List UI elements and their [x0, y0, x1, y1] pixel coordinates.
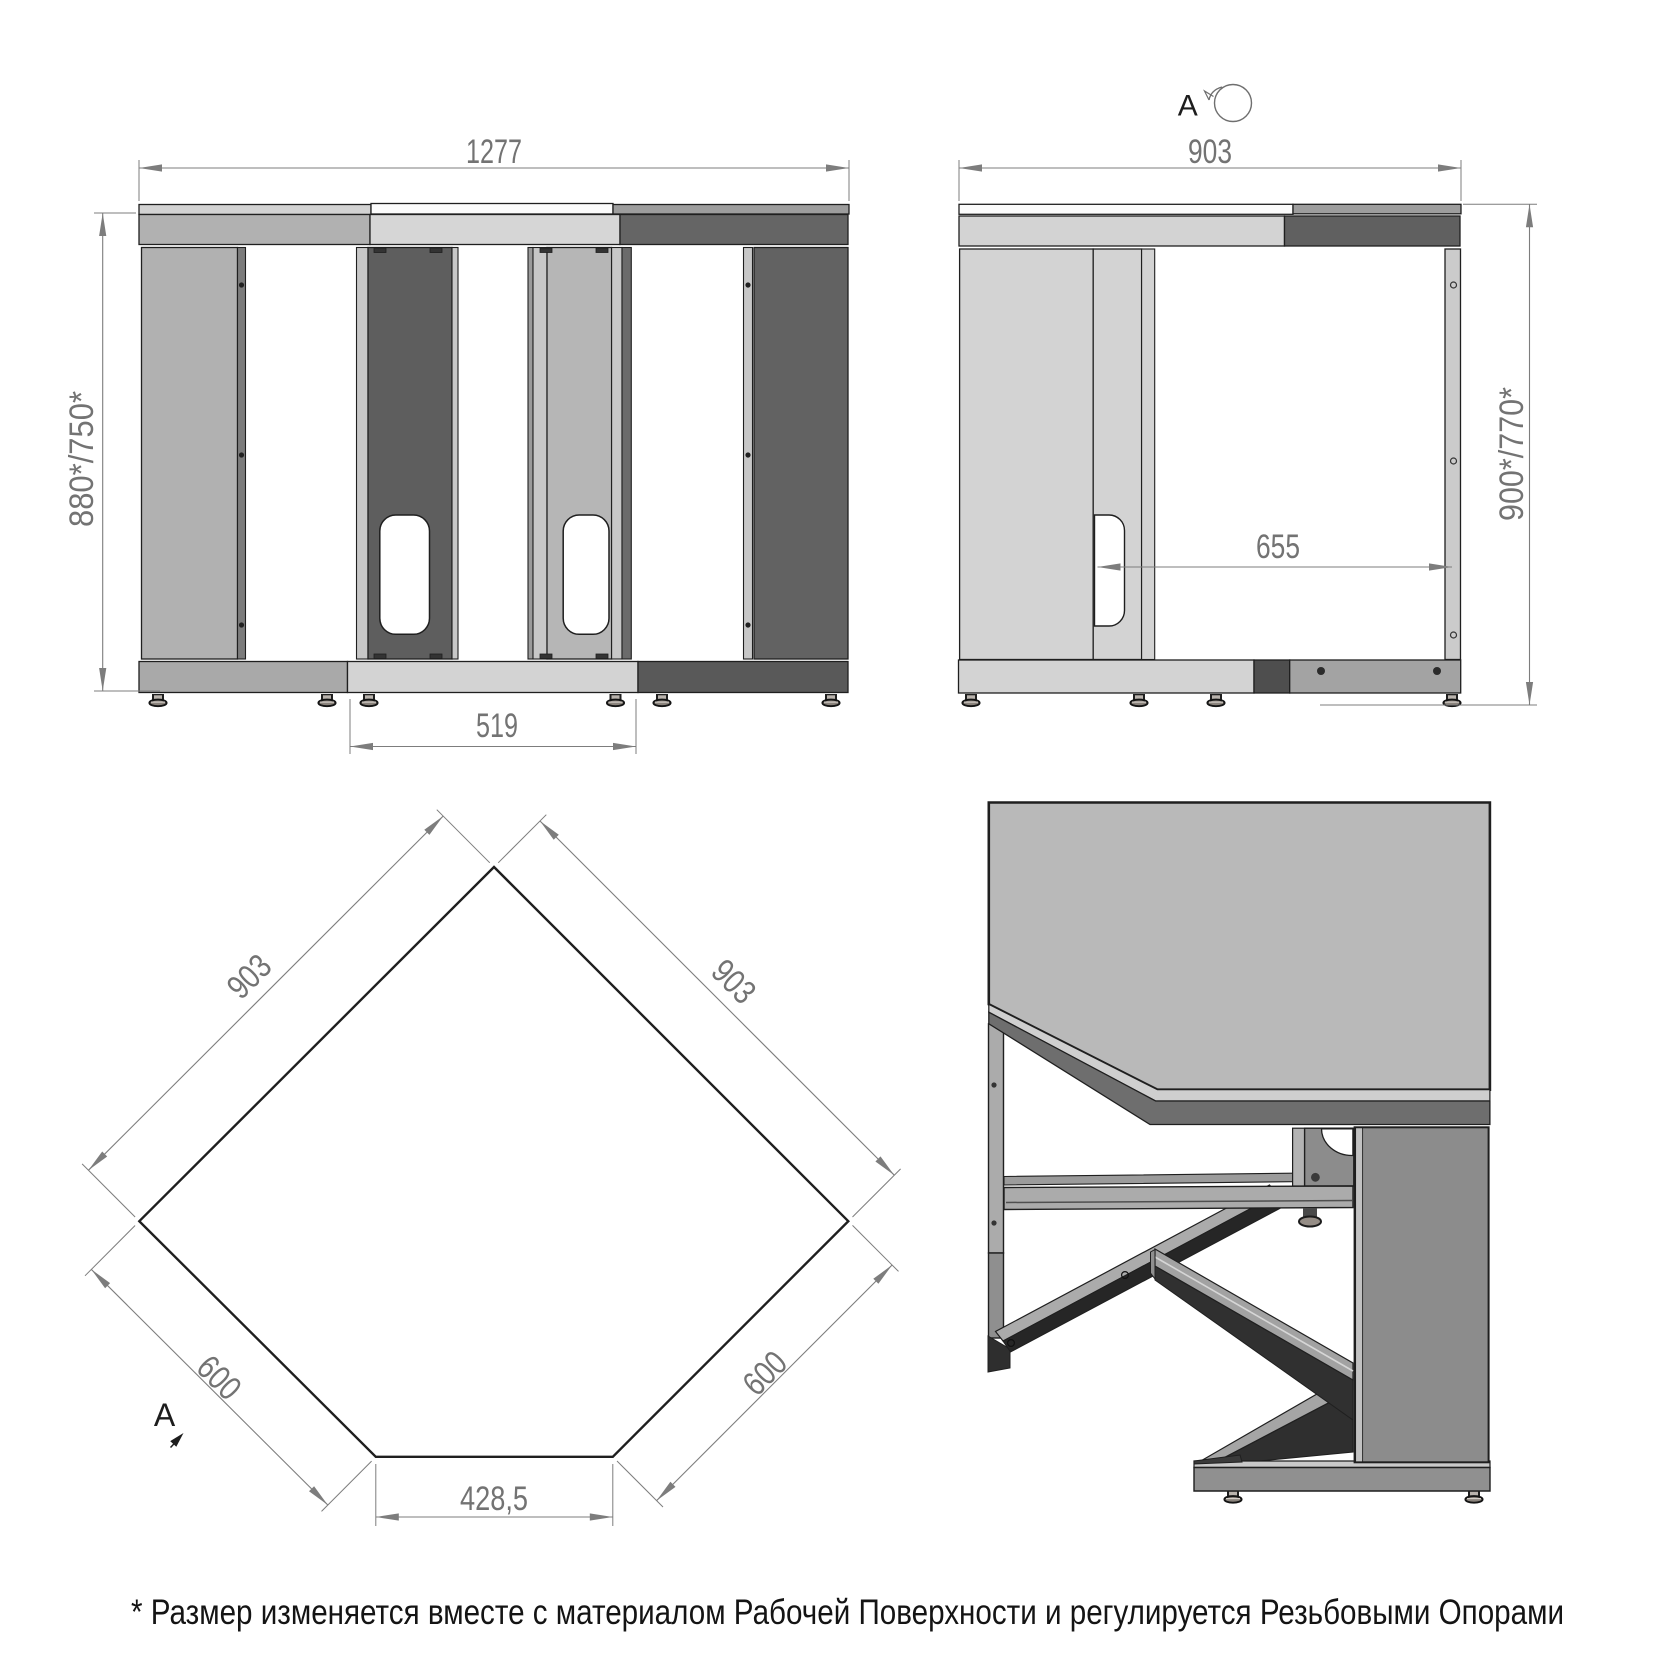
svg-text:* Размер изменяется вместе с м: * Размер изменяется вместе с материалом …	[131, 1593, 1564, 1632]
svg-text:903: 903	[220, 947, 279, 1006]
svg-text:655: 655	[1256, 528, 1300, 566]
svg-text:880*/750*: 880*/750*	[63, 391, 101, 527]
svg-text:600: 600	[189, 1348, 248, 1407]
svg-text:428,5: 428,5	[460, 1480, 528, 1518]
svg-text:900*/770*: 900*/770*	[1493, 387, 1531, 521]
svg-text:600: 600	[735, 1344, 794, 1403]
svg-text:A: A	[154, 1397, 176, 1433]
svg-text:A: A	[1178, 89, 1198, 122]
svg-text:903: 903	[704, 952, 763, 1011]
svg-text:519: 519	[476, 707, 518, 745]
svg-text:1277: 1277	[466, 133, 522, 171]
svg-text:903: 903	[1188, 133, 1232, 171]
